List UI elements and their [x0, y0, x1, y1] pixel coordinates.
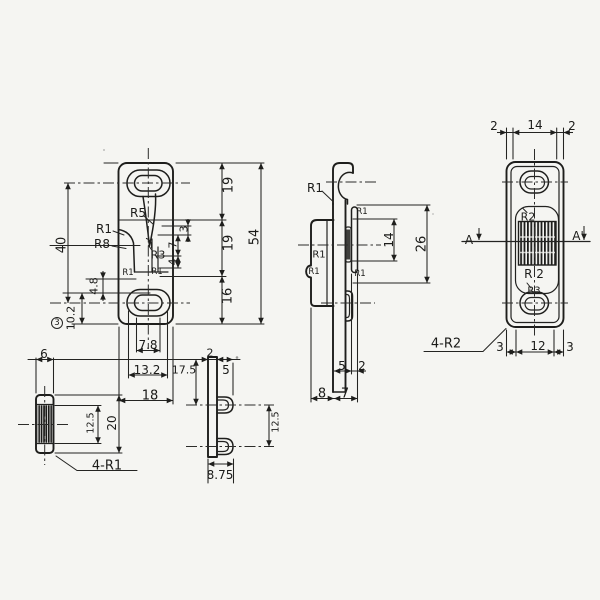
engineering-drawing: 40 4.8 10.2 3 R5 R1 R8 R3 R1 R1 3 7 4 19…: [0, 0, 600, 600]
radius-r1-upper: R1: [96, 222, 112, 236]
dim-4.8: 4.8: [88, 277, 101, 295]
dim-14: 14: [382, 232, 396, 247]
dim-7: 7: [167, 242, 180, 249]
dim-2: 2: [207, 347, 214, 360]
dim-5: 5: [338, 359, 346, 373]
back-knurled-hatch-area: [519, 222, 557, 266]
dim-8.75: 8.75: [207, 468, 234, 482]
dim-26: 26: [415, 236, 430, 253]
dim-10.2: 10.2: [65, 306, 78, 331]
note-4r1: 4-R1: [92, 459, 122, 474]
dim-19-mid: 19: [222, 235, 237, 252]
dim-18: 18: [142, 389, 159, 404]
dim-40: 40: [55, 237, 70, 254]
balloon-number: 3: [54, 318, 59, 328]
dim-6: 6: [40, 347, 48, 361]
section-label-a-prime: A': [572, 229, 584, 243]
radius-r3: R3: [527, 286, 540, 297]
dim-12: 12: [530, 339, 545, 353]
radius-r1-step-left: R1: [122, 268, 133, 278]
dim-4: 4: [167, 259, 180, 266]
dim-12.5: 12.5: [271, 411, 282, 432]
paper-background: [0, 0, 600, 600]
dim-17.5: 17.5: [172, 364, 197, 377]
radius-r8: R8: [94, 237, 110, 251]
radius-r5: R5: [130, 206, 146, 220]
radius-r2-top: R2: [521, 211, 536, 224]
dim-2: 2: [358, 359, 366, 373]
radius-r1-tab: R1: [356, 207, 367, 217]
dim-14: 14: [527, 118, 542, 132]
section-label-a: A: [465, 233, 474, 247]
dim-54: 54: [248, 229, 263, 246]
radius-r1-notch: R1: [308, 267, 319, 277]
radius-r1-hook: R1: [307, 181, 323, 195]
radius-r1-mid: R1: [312, 250, 325, 261]
dim-13.2: 13.2: [134, 363, 161, 377]
radius-r1-step-right: R1: [151, 267, 162, 277]
radius-r3: R3: [151, 249, 166, 262]
dim-3-right: 3: [566, 340, 574, 354]
dim-7.8: 7.8: [138, 338, 157, 352]
dim-19-top: 19: [222, 177, 237, 194]
dim-8: 8: [318, 387, 326, 402]
dim-3-left: 3: [496, 340, 504, 354]
dim-7: 7: [341, 387, 349, 402]
dim-2-right: 2: [568, 119, 576, 133]
radius-r2-bottom: R 2: [524, 267, 544, 281]
dim-5: 5: [222, 363, 230, 377]
note-4r2: 4-R2: [431, 337, 461, 352]
dim-16: 16: [221, 288, 236, 305]
dim-12.5: 12.5: [86, 412, 97, 433]
dim-3: 3: [178, 226, 191, 233]
dim-2-left: 2: [490, 119, 498, 133]
scanned-drawing-page: 40 4.8 10.2 3 R5 R1 R8 R3 R1 R1 3 7 4 19…: [0, 0, 600, 600]
dim-20: 20: [105, 415, 119, 430]
radius-r1-slot: R1: [354, 269, 365, 279]
